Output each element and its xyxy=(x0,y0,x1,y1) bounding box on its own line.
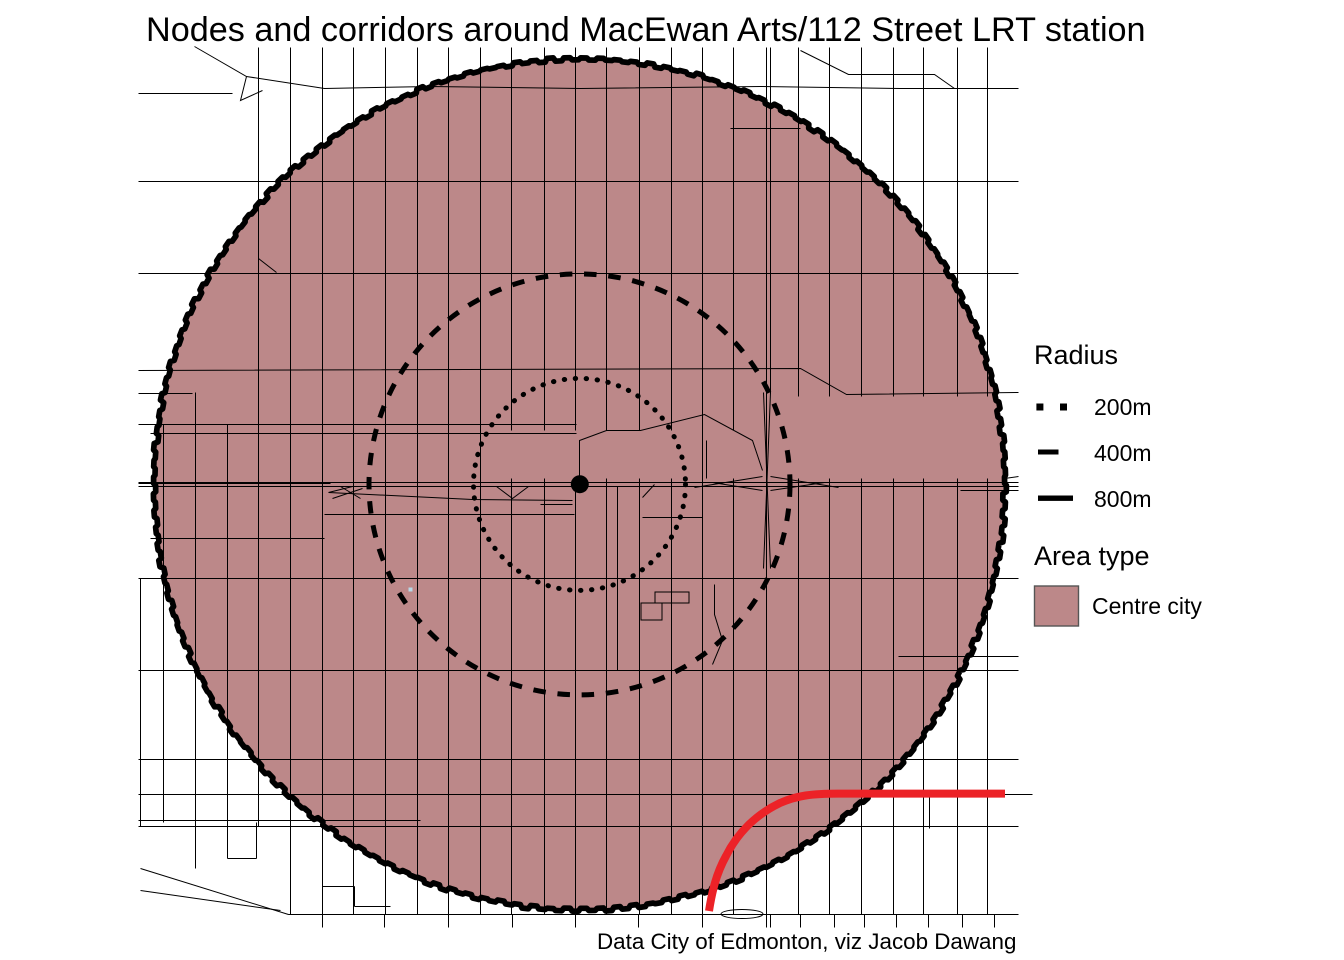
svg-text:400m: 400m xyxy=(1094,440,1152,466)
svg-text:Radius: Radius xyxy=(1034,340,1118,370)
svg-text:Data City of Edmonton, viz Jac: Data City of Edmonton, viz Jacob Dawang xyxy=(597,929,1016,954)
svg-text:800m: 800m xyxy=(1094,486,1152,512)
svg-text:Nodes and corridors around Mac: Nodes and corridors around MacEwan Arts/… xyxy=(146,11,1146,49)
svg-text:Area type: Area type xyxy=(1034,541,1150,571)
svg-text:Centre city: Centre city xyxy=(1092,593,1202,619)
svg-text:200m: 200m xyxy=(1094,394,1152,420)
